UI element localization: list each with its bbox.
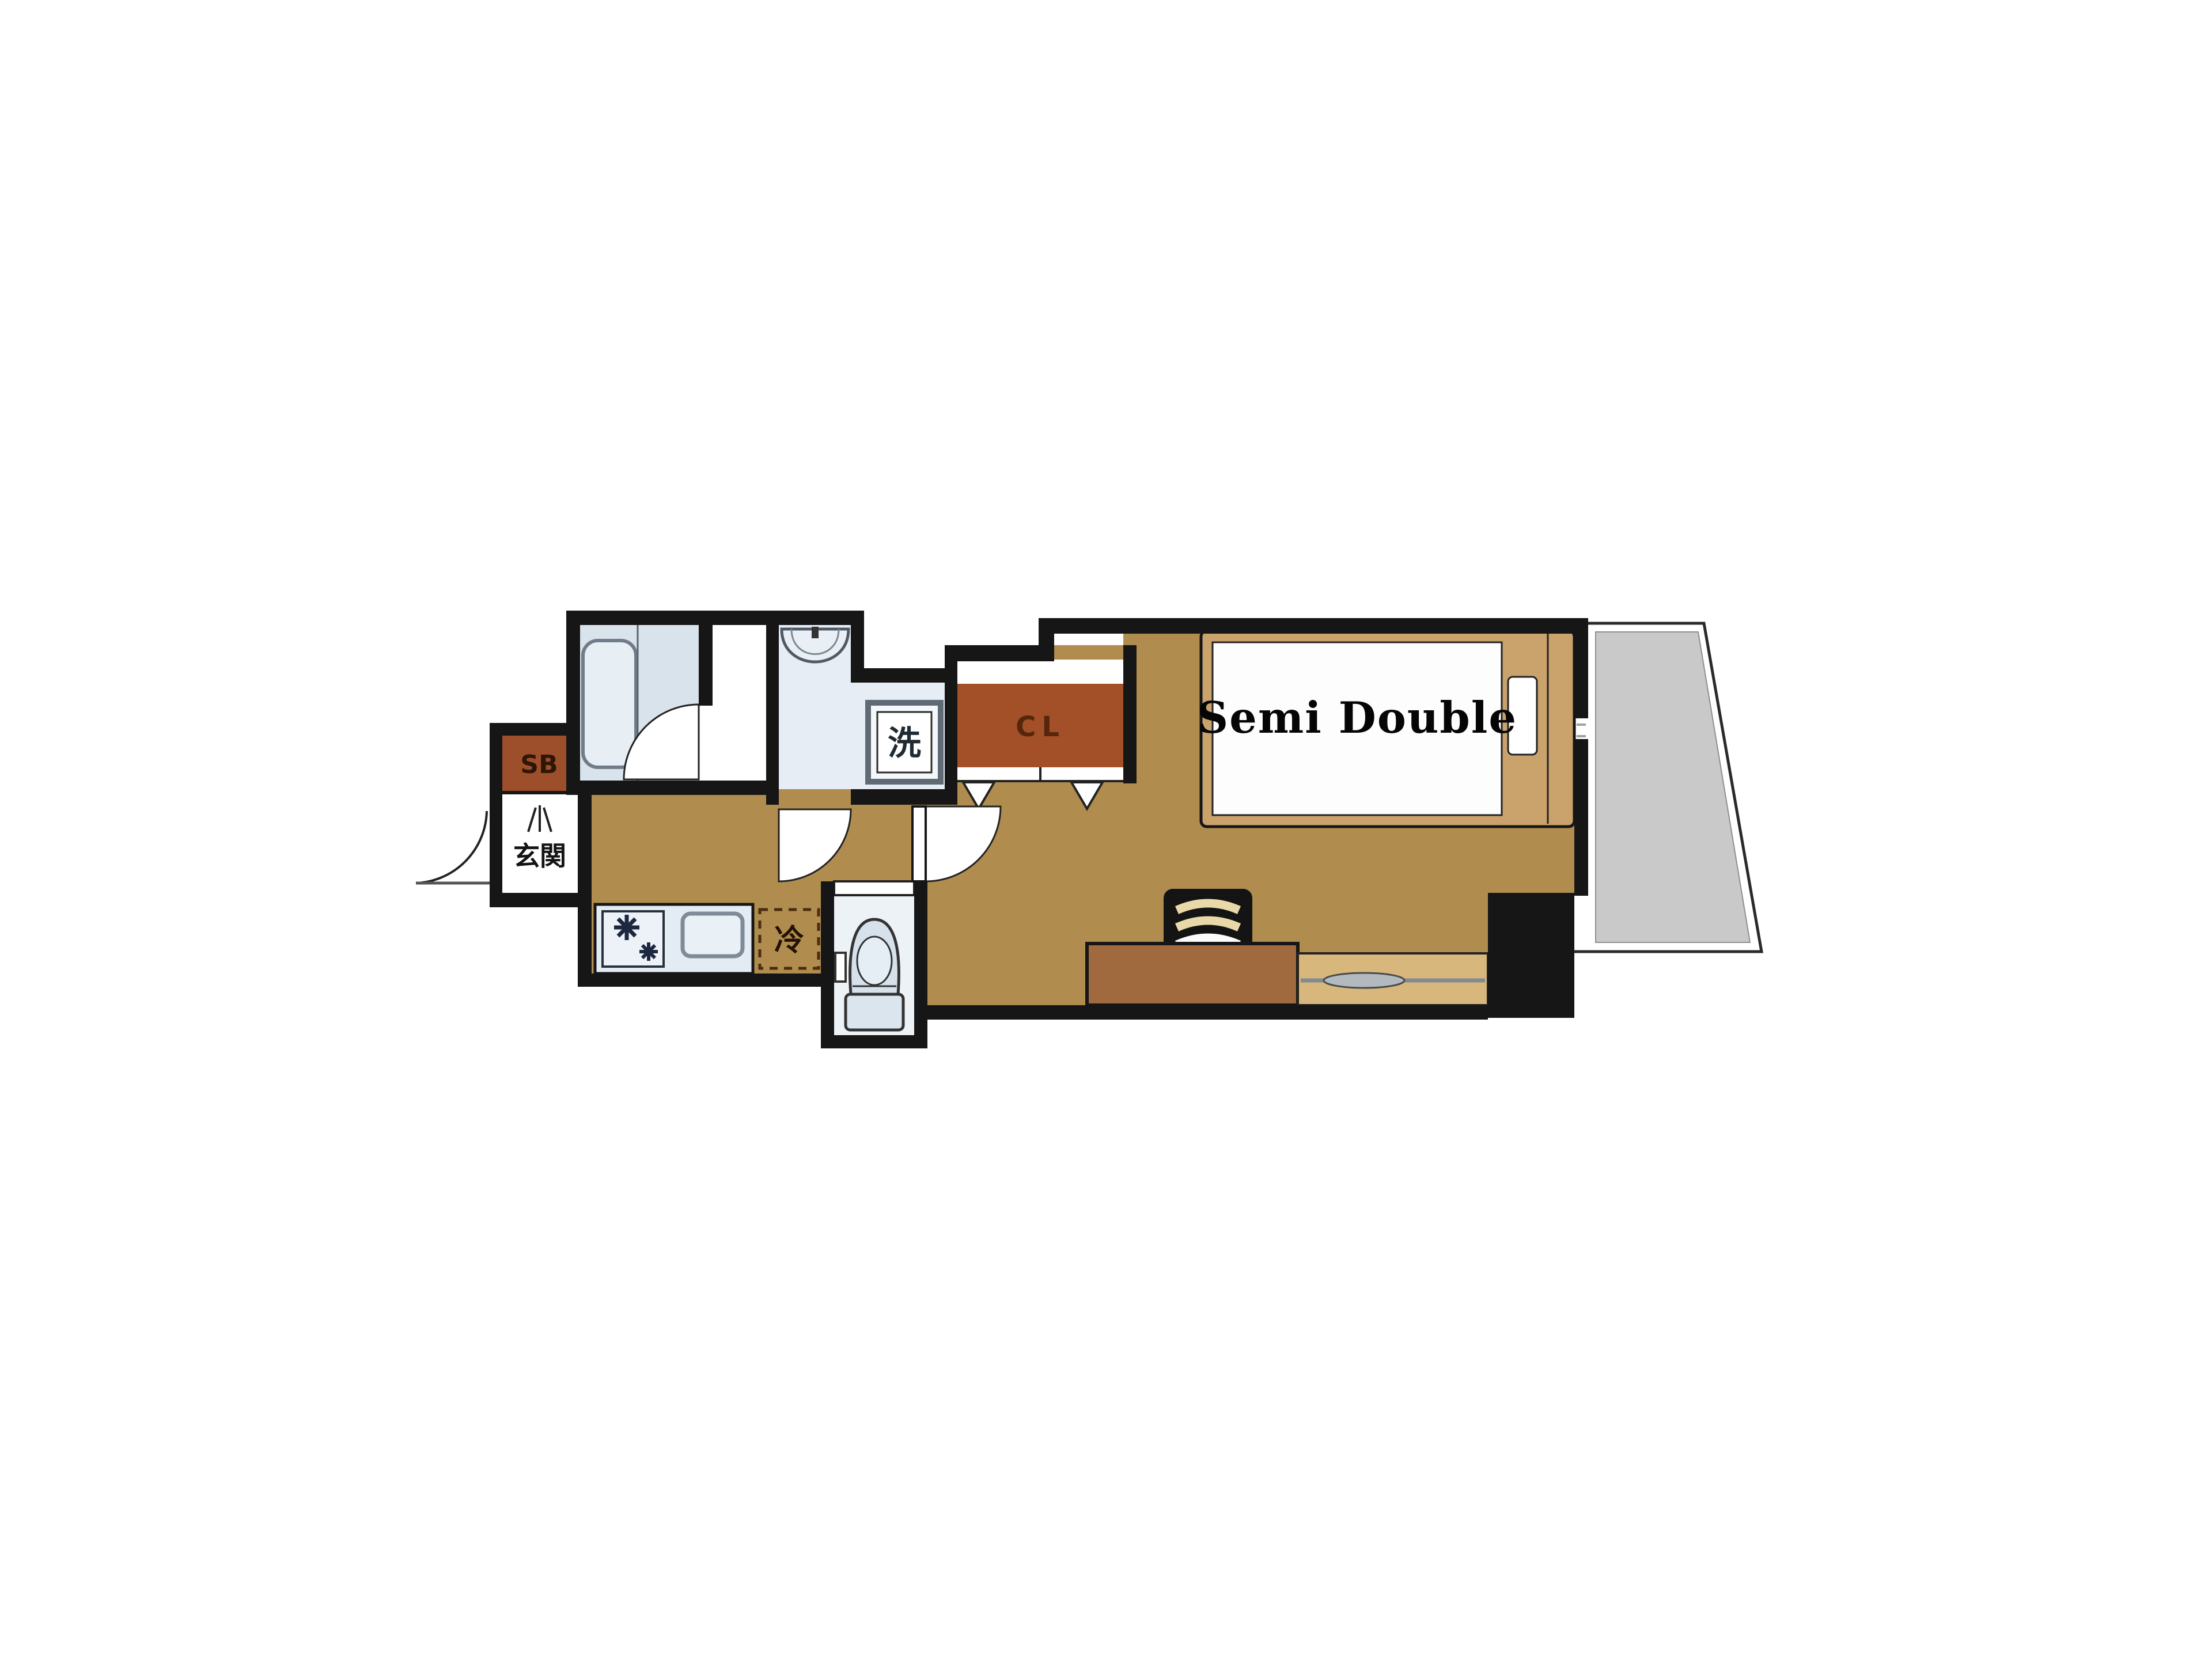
toilet-door-band: [834, 881, 914, 895]
desk: [1087, 944, 1298, 1005]
kitchen-sink: [683, 914, 743, 956]
closet-back-strip: [957, 660, 1123, 684]
entrance-label: 玄関: [513, 840, 566, 872]
living-room-door-leaf: [912, 806, 926, 881]
bed-label: Semi Double: [1197, 692, 1517, 743]
window-handle: [1324, 973, 1404, 988]
washing-machine-label: 洗: [888, 724, 921, 763]
balcony-deck: [1596, 632, 1750, 942]
entrance-door-swing: [416, 811, 487, 883]
toilet-seat: [857, 937, 892, 985]
toilet-tank: [846, 994, 903, 1030]
pipe-shaft: [713, 625, 766, 781]
closet-label: CL: [1016, 711, 1065, 743]
refrigerator-label: 冷: [774, 923, 804, 958]
shoe-box-label: SB: [520, 750, 558, 779]
floor-plan: SB 玄関 CL 洗 冷 Semi Double: [0, 0, 2212, 1659]
washbasin-tap-icon: [812, 627, 819, 638]
toilet-flush-handle: [835, 953, 846, 982]
bathtub: [583, 641, 636, 767]
floor-plan-page: SB 玄関 CL 洗 冷 Semi Double: [0, 0, 2212, 1659]
structural-pillar: [1488, 893, 1574, 1018]
